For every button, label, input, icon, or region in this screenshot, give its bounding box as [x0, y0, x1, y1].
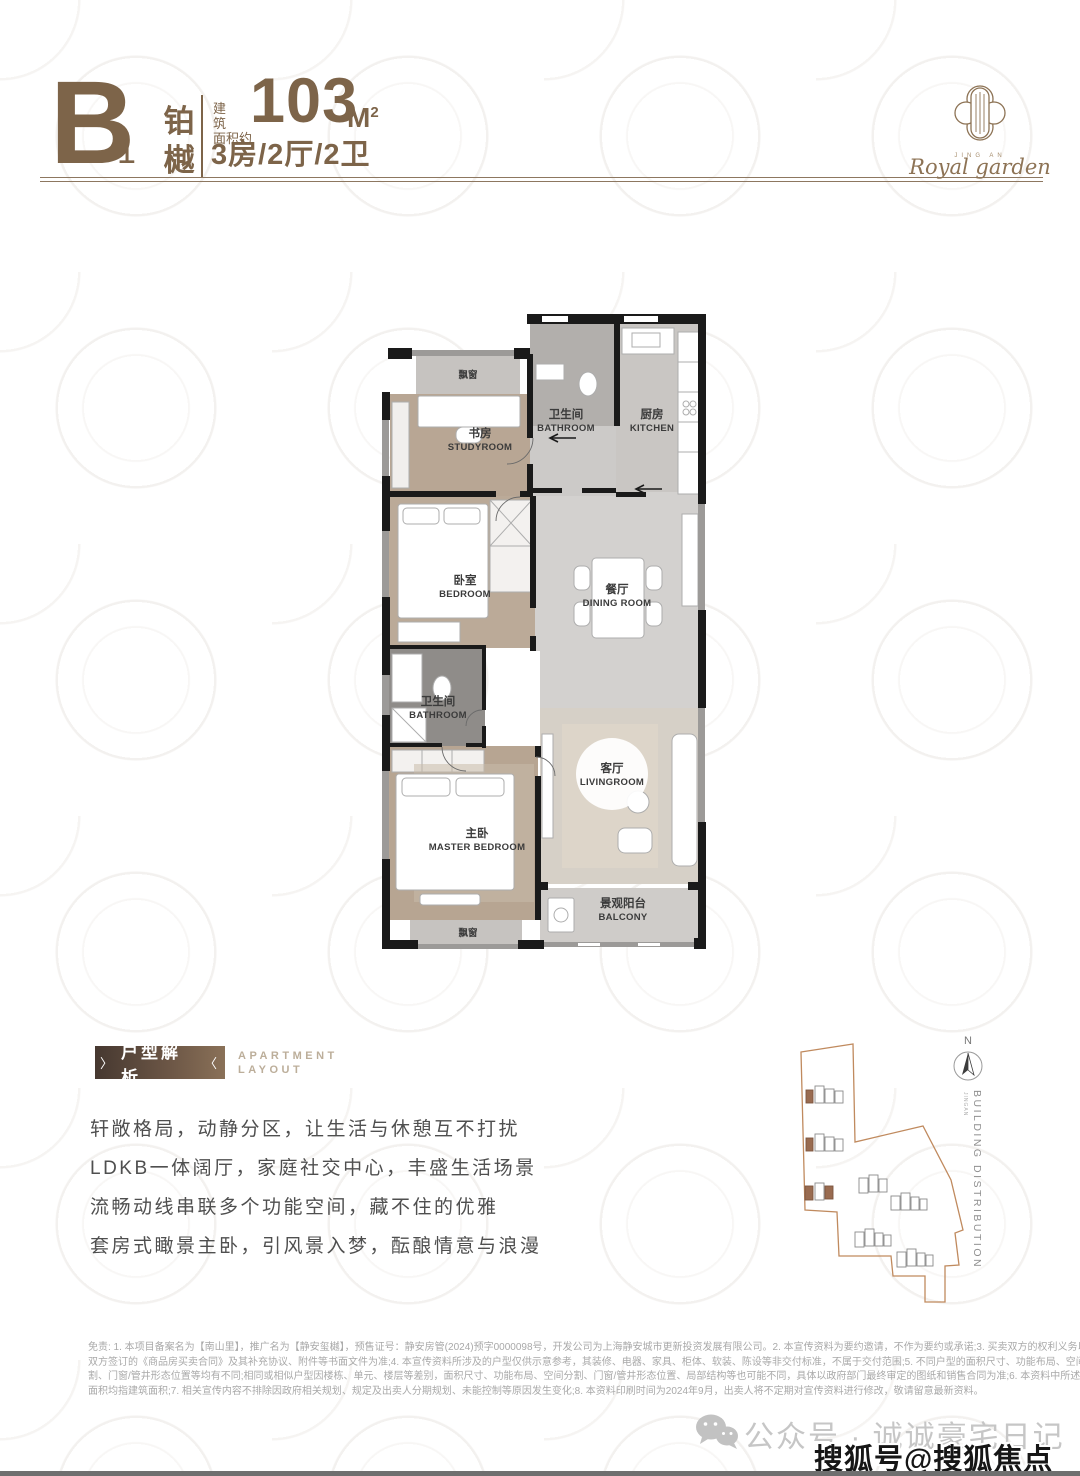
- site-caption: BUILDING DISTRIBUTION: [971, 1090, 983, 1269]
- analysis-badge-label: 户型解析: [121, 1038, 199, 1088]
- room-label-bedroom-cn: 卧室: [454, 573, 477, 587]
- room-label-balcony-en: BALCONY: [598, 912, 647, 923]
- area-unit-sup: 2: [370, 104, 378, 121]
- room-label-bath1-cn: 卫生间: [549, 407, 584, 421]
- room-label-master-en: MASTER BEDROOM: [429, 842, 526, 853]
- disclaimer: 免责: 1. 本项目备案名为【南山里】，推广名为【静安玺樾】，预售证号：静安房管…: [88, 1341, 998, 1399]
- building-footprints: [805, 1086, 933, 1267]
- area-value: 103: [250, 70, 358, 133]
- logo-script-text: Royal garden: [900, 155, 1060, 179]
- unit-name-char1: 铂: [161, 102, 197, 141]
- disclaimer-line-4: 面积均指建筑面积;7. 相关宣传内容不排除因政府相关规划、规定及出卖人分期规划、…: [88, 1385, 998, 1400]
- header-divider: [201, 95, 203, 177]
- north-compass-icon: N: [954, 1035, 982, 1080]
- room-label-dining-en: DINING ROOM: [583, 598, 652, 609]
- bottom-bar: [0, 1471, 1080, 1476]
- unit-number: 1: [117, 133, 136, 172]
- chevron-right-icon: 〉: [100, 1053, 116, 1072]
- disclaimer-line-1: 免责: 1. 本项目备案名为【南山里】，推广名为【静安玺樾】，预售证号：静安房管…: [88, 1341, 998, 1356]
- disclaimer-line-3: 割、门窗/管井形态位置等均有不同;相同或相似户型因楼栋、单元、楼层等差别，面积尺…: [88, 1370, 998, 1385]
- quatrefoil-emblem-icon: [900, 80, 1060, 146]
- chevron-left-icon: 〈: [204, 1053, 220, 1072]
- wechat-icon: [694, 1412, 740, 1452]
- analysis-line-3: 流畅动线串联多个功能空间，藏不住的优雅: [90, 1188, 542, 1227]
- analysis-badge-en: APARTMENT LAYOUT: [238, 1049, 338, 1077]
- room-label-bath2-en: BATHROOM: [409, 710, 467, 721]
- sohu-watermark: 搜狐号@搜狐焦点淮南站: [814, 1436, 1080, 1476]
- room-label-dining-cn: 餐厅: [605, 582, 629, 596]
- header-double-rule: [40, 177, 1043, 182]
- building-distribution-map: N JINGAN BUILDING DISTRIBUTION: [773, 1030, 1073, 1332]
- room-label-living-en: LIVINGROOM: [580, 777, 644, 788]
- area-prefix-line1: 建筑: [213, 101, 255, 131]
- floor-plan: 飘窗 书房 STUDYROOM 卫生间 BATHROOM 厨房 KITCHEN …: [380, 306, 714, 956]
- room-label-kitchen-cn: 厨房: [641, 407, 664, 421]
- site-boundary: [801, 1044, 963, 1302]
- analysis-line-4: 套房式瞰景主卧，引风景入梦，酝酿情意与浪漫: [90, 1227, 542, 1266]
- room-label-study-cn: 书房: [469, 426, 492, 440]
- analysis-badge-en-line2: LAYOUT: [238, 1063, 338, 1077]
- unit-name: 铂 樾: [161, 102, 197, 180]
- brand-logo: JING AN Royal garden: [900, 80, 1060, 180]
- area-unit: M2: [347, 102, 379, 134]
- analysis-badge-en-line1: APARTMENT: [238, 1049, 338, 1063]
- analysis-line-1: 轩敞格局，动静分区，让生活与休憩互不打扰: [90, 1110, 542, 1149]
- room-label-kitchen-en: KITCHEN: [630, 423, 674, 434]
- analysis-text: 轩敞格局，动静分区，让生活与休憩互不打扰 LDKB一体阔厅，家庭社交中心，丰盛生…: [90, 1110, 542, 1266]
- room-label-bath1-en: BATHROOM: [537, 423, 595, 434]
- room-label-balcony-cn: 景观阳台: [599, 896, 646, 910]
- layout-spec: 3房/2厅/2卫: [211, 131, 371, 173]
- room-label-bath2-cn: 卫生间: [421, 694, 456, 708]
- site-caption-small: JINGAN: [962, 1092, 968, 1116]
- analysis-badge: 〉 户型解析 〈: [95, 1046, 225, 1079]
- poster-page: B 1 铂 樾 建筑 面积约 103 M2 3房/2厅/2卫: [0, 0, 1080, 1476]
- room-label-bay-bottom: 飘窗: [457, 927, 478, 939]
- room-label-bay-top: 飘窗: [457, 369, 478, 381]
- north-label: N: [964, 1035, 972, 1047]
- area-unit-m: M: [347, 102, 370, 133]
- analysis-line-2: LDKB一体阔厅，家庭社交中心，丰盛生活场景: [90, 1149, 542, 1188]
- unit-name-char2: 樾: [161, 141, 197, 180]
- room-label-master-cn: 主卧: [466, 826, 489, 840]
- room-label-study-en: STUDYROOM: [448, 442, 512, 453]
- room-label-bedroom-en: BEDROOM: [439, 589, 491, 600]
- disclaimer-line-2: 双方签订的《商品房买卖合同》及其补充协议、附件等书面文件为准;4. 本宣传资料所…: [88, 1356, 998, 1371]
- room-label-living-cn: 客厅: [600, 761, 624, 775]
